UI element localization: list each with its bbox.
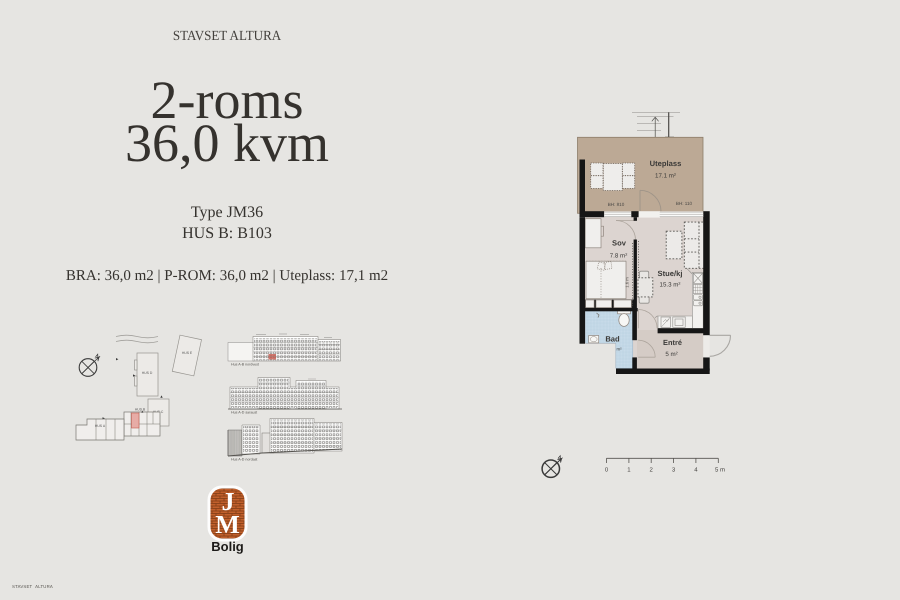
- svg-text:Sov: Sov: [612, 239, 627, 248]
- svg-text:4: 4: [694, 467, 698, 474]
- svg-text:Bolig: Bolig: [211, 539, 244, 554]
- svg-text:HUS B: HUS B: [135, 408, 146, 412]
- svg-text:Hus A-D saraust: Hus A-D saraust: [231, 411, 257, 415]
- svg-text:Hus A-D nordast: Hus A-D nordast: [231, 458, 257, 462]
- svg-text:HUS D: HUS D: [142, 371, 153, 375]
- svg-text:m²: m²: [616, 347, 622, 352]
- svg-text:Bad: Bad: [605, 335, 620, 344]
- svg-text:3: 3: [672, 467, 676, 474]
- svg-text:5 m: 5 m: [715, 467, 725, 474]
- svg-text:7.8 m²: 7.8 m²: [610, 252, 628, 259]
- svg-text:Entré: Entré: [663, 338, 682, 347]
- svg-text:HUS A: HUS A: [95, 424, 106, 428]
- svg-text:Hus A-B nordvest: Hus A-B nordvest: [231, 363, 259, 367]
- svg-text:1: 1: [627, 467, 631, 474]
- svg-text:0: 0: [605, 467, 609, 474]
- svg-text:HUS E: HUS E: [182, 351, 193, 355]
- svg-text:15.3 m²: 15.3 m²: [660, 281, 681, 288]
- svg-text:Uteplass: Uteplass: [650, 159, 682, 168]
- svg-text:5 m²: 5 m²: [665, 351, 677, 358]
- svg-text:2: 2: [650, 467, 654, 474]
- svg-text:BH: 810: BH: 810: [608, 202, 625, 207]
- svg-text:1.6 m: 1.6 m: [625, 277, 630, 288]
- svg-text:M: M: [215, 510, 240, 539]
- svg-text:Stue/kj: Stue/kj: [658, 269, 683, 278]
- svg-text:17.1 m²: 17.1 m²: [655, 173, 676, 180]
- svg-text:BH: 110: BH: 110: [676, 201, 693, 206]
